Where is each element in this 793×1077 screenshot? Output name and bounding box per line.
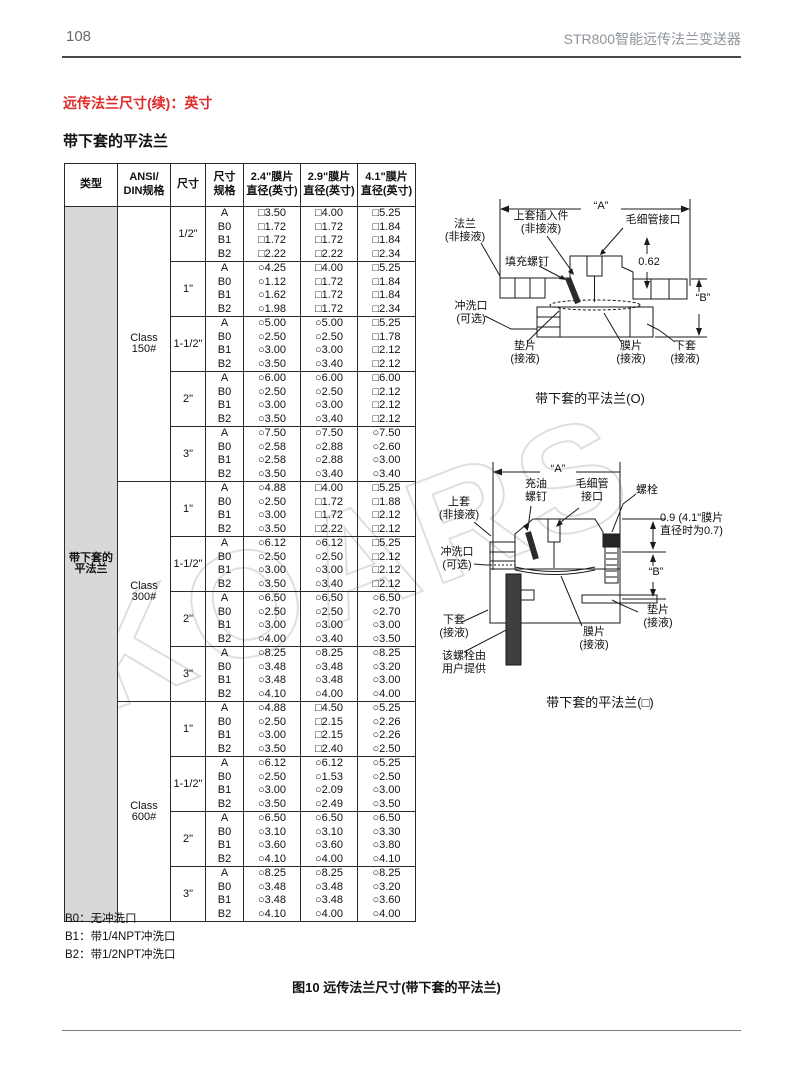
value-cell: □2.15 — [301, 716, 358, 730]
value-cell: ○3.80 — [358, 839, 416, 853]
value-cell: ○2.88 — [301, 454, 358, 468]
dim-b-label: “B” — [636, 566, 676, 579]
spec-cell: B0 — [206, 716, 244, 730]
diaphragm-label: 膜片 (接液) — [605, 340, 657, 366]
dim-062-label: 0.62 — [631, 256, 667, 269]
value-cell: □2.12 — [358, 413, 416, 427]
value-cell: ○4.00 — [301, 853, 358, 867]
value-cell: ○4.00 — [244, 633, 301, 647]
spec-cell: B2 — [206, 468, 244, 482]
value-cell: ○3.48 — [244, 674, 301, 688]
value-cell: ○4.00 — [301, 908, 358, 922]
spec-cell: A — [206, 427, 244, 441]
value-cell: ○6.00 — [244, 372, 301, 386]
user-supplied-bolt-label: 该螺栓由 用户提供 — [432, 650, 496, 676]
value-cell: □2.12 — [358, 386, 416, 400]
spec-cell: A — [206, 592, 244, 606]
value-cell: □2.12 — [358, 578, 416, 592]
class-cell: Class 600# — [118, 702, 171, 922]
lower-sleeve-label: 下套 (接液) — [659, 340, 711, 366]
value-cell: ○3.00 — [244, 509, 301, 523]
value-cell: ○3.10 — [301, 826, 358, 840]
value-cell: □4.00 — [301, 482, 358, 496]
class-cell: Class 300# — [118, 482, 171, 702]
spec-cell: B2 — [206, 688, 244, 702]
value-cell: ○3.60 — [244, 839, 301, 853]
spec-cell: B2 — [206, 908, 244, 922]
manual-page: 108 STR800智能远传法兰变送器 远传法兰尺寸(续)：英寸 带下套的平法兰… — [0, 0, 793, 1077]
value-cell: ○3.00 — [358, 784, 416, 798]
value-cell: ○4.00 — [301, 688, 358, 702]
value-cell: ○6.50 — [244, 812, 301, 826]
spec-cell: B0 — [206, 826, 244, 840]
value-cell: ○3.50 — [244, 578, 301, 592]
value-cell: ○6.12 — [301, 757, 358, 771]
value-cell: ○3.00 — [244, 729, 301, 743]
value-cell: ○2.09 — [301, 784, 358, 798]
value-cell: □2.12 — [358, 399, 416, 413]
spec-cell: B2 — [206, 633, 244, 647]
value-cell: ○3.40 — [301, 578, 358, 592]
value-cell: □2.22 — [301, 248, 358, 262]
value-cell: ○4.10 — [244, 908, 301, 922]
note-line: B1：带1/4NPT冲洗口 — [65, 928, 176, 946]
value-cell: ○1.62 — [244, 289, 301, 303]
capillary-port-label: 毛细管接口 — [611, 214, 695, 227]
value-cell: ○8.25 — [244, 647, 301, 661]
figure-caption: 图10 远传法兰尺寸(带下套的平法兰) — [0, 977, 793, 996]
value-cell: □1.72 — [301, 303, 358, 317]
value-cell: □6.00 — [358, 372, 416, 386]
spec-cell: B0 — [206, 331, 244, 345]
value-cell: □4.50 — [301, 702, 358, 716]
gasket-label: 垫片 (接液) — [499, 340, 551, 366]
value-cell: ○3.00 — [301, 619, 358, 633]
value-cell: ○4.88 — [244, 702, 301, 716]
value-cell: □1.72 — [301, 234, 358, 248]
diagram-flat-flange-square: “A” 充油 螺钉 毛细管 接口 螺栓 上套 (非接液) 冲洗口 (可选) 0.… — [430, 452, 770, 714]
value-cell: □2.12 — [358, 358, 416, 372]
size-cell: 2" — [171, 372, 206, 427]
dim-a-label: “A” — [581, 200, 621, 213]
spec-cell: A — [206, 262, 244, 276]
size-cell: 1" — [171, 262, 206, 317]
value-cell: ○5.00 — [244, 317, 301, 331]
value-cell: ○3.50 — [244, 413, 301, 427]
dimensions-table: 类型ANSI/ DIN规格尺寸尺寸 规格2.4"膜片 直径(英寸)2.9"膜片 … — [64, 163, 416, 922]
value-cell: □2.40 — [301, 743, 358, 757]
dim-b-label: “B” — [685, 292, 721, 305]
fill-screw-label: 填充螺钉 — [497, 256, 557, 269]
type-cell: 带下套的 平法兰 — [65, 207, 118, 922]
value-cell: ○4.00 — [358, 908, 416, 922]
value-cell: ○2.50 — [244, 551, 301, 565]
value-cell: ○2.50 — [301, 331, 358, 345]
diagram-caption: 带下套的平法兰(□) — [430, 692, 770, 711]
value-cell: ○4.88 — [244, 482, 301, 496]
header-title: STR800智能远传法兰变送器 — [564, 29, 741, 49]
diaphragm-label: 膜片 (接液) — [568, 626, 620, 652]
value-cell: ○8.25 — [358, 867, 416, 881]
flange-label: 法兰 (非接液) — [437, 218, 493, 244]
footer-divider — [62, 1030, 741, 1031]
value-cell: ○3.00 — [244, 784, 301, 798]
value-cell: □1.72 — [301, 276, 358, 290]
value-cell: □2.34 — [358, 248, 416, 262]
value-cell: ○2.50 — [301, 386, 358, 400]
spec-cell: B2 — [206, 248, 244, 262]
flush-port-label: 冲洗口 (可选) — [445, 300, 497, 326]
spec-cell: A — [206, 647, 244, 661]
value-cell: □2.22 — [244, 248, 301, 262]
value-cell: ○3.00 — [244, 344, 301, 358]
value-cell: ○6.50 — [358, 812, 416, 826]
value-cell: ○3.00 — [301, 564, 358, 578]
table-row: 带下套的 平法兰Class 150#1/2"A□3.50□4.00□5.25 — [65, 207, 416, 221]
value-cell: ○6.50 — [301, 592, 358, 606]
value-cell: ○2.88 — [301, 441, 358, 455]
value-cell: ○3.00 — [244, 564, 301, 578]
value-cell: ○3.00 — [301, 344, 358, 358]
value-cell: ○3.50 — [244, 523, 301, 537]
spec-cell: B2 — [206, 523, 244, 537]
value-cell: ○2.58 — [244, 441, 301, 455]
spec-cell: B0 — [206, 441, 244, 455]
value-cell: ○2.50 — [244, 331, 301, 345]
value-cell: □5.25 — [358, 317, 416, 331]
value-cell: □1.72 — [244, 234, 301, 248]
upper-sleeve-insert-label: 上套插入件 (非接液) — [499, 210, 583, 236]
value-cell: ○7.50 — [301, 427, 358, 441]
value-cell: □1.72 — [301, 496, 358, 510]
size-cell: 1" — [171, 482, 206, 537]
value-cell: □4.00 — [301, 207, 358, 221]
value-cell: ○3.48 — [301, 881, 358, 895]
value-cell: ○3.20 — [358, 881, 416, 895]
dim-09-label: 0.9 (4.1"膜片 直径时为0.7) — [660, 512, 770, 538]
spec-cell: A — [206, 537, 244, 551]
value-cell: ○2.50 — [244, 606, 301, 620]
spec-cell: B1 — [206, 839, 244, 853]
value-cell: □1.72 — [301, 289, 358, 303]
table-row: Class 300#1"A○4.88□4.00□5.25 — [65, 482, 416, 496]
value-cell: □2.12 — [358, 344, 416, 358]
note-line: B0：无冲洗口 — [65, 910, 176, 928]
spec-cell: A — [206, 372, 244, 386]
value-cell: ○3.50 — [244, 358, 301, 372]
spec-cell: A — [206, 317, 244, 331]
value-cell: ○3.00 — [358, 674, 416, 688]
value-cell: ○1.98 — [244, 303, 301, 317]
spec-cell: B1 — [206, 454, 244, 468]
value-cell: ○3.40 — [301, 633, 358, 647]
value-cell: ○4.10 — [244, 853, 301, 867]
spec-cell: B2 — [206, 798, 244, 812]
value-cell: ○3.48 — [301, 894, 358, 908]
value-cell: □3.50 — [244, 207, 301, 221]
value-cell: ○3.48 — [301, 661, 358, 675]
value-cell: □1.72 — [244, 221, 301, 235]
column-header: 尺寸 规格 — [206, 164, 244, 207]
value-cell: ○3.48 — [244, 881, 301, 895]
value-cell: □2.12 — [358, 551, 416, 565]
column-header: 4.1"膜片 直径(英寸) — [358, 164, 416, 207]
column-header: 2.9"膜片 直径(英寸) — [301, 164, 358, 207]
diagram-flat-flange-round: “A” 法兰 (非接液) 上套插入件 (非接液) 毛细管接口 填充螺钉 0.62… — [435, 186, 745, 408]
spec-cell: B2 — [206, 853, 244, 867]
value-cell: ○7.50 — [244, 427, 301, 441]
capillary-port-label: 毛细管 接口 — [566, 478, 618, 504]
spec-cell: B1 — [206, 234, 244, 248]
value-cell: ○3.40 — [301, 468, 358, 482]
value-cell: ○8.25 — [244, 867, 301, 881]
value-cell: ○3.60 — [301, 839, 358, 853]
value-cell: ○3.50 — [244, 798, 301, 812]
spec-cell: B1 — [206, 289, 244, 303]
spec-cell: B1 — [206, 729, 244, 743]
column-header: 类型 — [65, 164, 118, 207]
spec-cell: B0 — [206, 276, 244, 290]
value-cell: □1.72 — [301, 221, 358, 235]
value-cell: ○3.00 — [358, 619, 416, 633]
value-cell: □5.25 — [358, 537, 416, 551]
value-cell: ○4.00 — [358, 688, 416, 702]
spec-cell: B1 — [206, 619, 244, 633]
value-cell: ○2.58 — [244, 454, 301, 468]
value-cell: □1.78 — [358, 331, 416, 345]
value-cell: ○6.12 — [301, 537, 358, 551]
value-cell: □1.84 — [358, 289, 416, 303]
value-cell: ○2.50 — [244, 386, 301, 400]
spec-cell: B1 — [206, 564, 244, 578]
value-cell: □5.25 — [358, 482, 416, 496]
dim-a-label: “A” — [540, 463, 576, 476]
class-cell: Class 150# — [118, 207, 171, 482]
value-cell: ○3.40 — [301, 413, 358, 427]
value-cell: □5.25 — [358, 262, 416, 276]
spec-cell: B0 — [206, 496, 244, 510]
value-cell: □2.34 — [358, 303, 416, 317]
value-cell: □1.84 — [358, 234, 416, 248]
value-cell: ○4.10 — [244, 688, 301, 702]
value-cell: ○6.12 — [244, 757, 301, 771]
value-cell: ○2.50 — [244, 771, 301, 785]
value-cell: ○2.50 — [301, 551, 358, 565]
value-cell: ○6.00 — [301, 372, 358, 386]
value-cell: ○3.48 — [301, 674, 358, 688]
value-cell: ○3.50 — [244, 468, 301, 482]
value-cell: ○2.60 — [358, 441, 416, 455]
value-cell: □1.88 — [358, 496, 416, 510]
value-cell: ○6.50 — [358, 592, 416, 606]
value-cell: ○2.50 — [301, 606, 358, 620]
value-cell: ○2.26 — [358, 729, 416, 743]
spec-cell: B1 — [206, 509, 244, 523]
spec-cell: B1 — [206, 894, 244, 908]
value-cell: □1.84 — [358, 276, 416, 290]
value-cell: ○6.50 — [244, 592, 301, 606]
value-cell: ○2.50 — [358, 743, 416, 757]
size-cell: 1/2" — [171, 207, 206, 262]
column-header: 尺寸 — [171, 164, 206, 207]
value-cell: ○2.50 — [244, 716, 301, 730]
value-cell: ○2.70 — [358, 606, 416, 620]
oil-fill-screw-label: 充油 螺钉 — [514, 478, 558, 504]
value-cell: □1.72 — [301, 509, 358, 523]
value-cell: ○8.25 — [358, 647, 416, 661]
spec-cell: B0 — [206, 606, 244, 620]
lower-sleeve-label: 下套 (接液) — [432, 614, 476, 640]
page-number: 108 — [66, 28, 91, 45]
size-cell: 2" — [171, 592, 206, 647]
value-cell: ○3.50 — [358, 633, 416, 647]
size-cell: 3" — [171, 427, 206, 482]
spec-cell: A — [206, 757, 244, 771]
value-cell: □1.84 — [358, 221, 416, 235]
value-cell: ○2.49 — [301, 798, 358, 812]
spec-cell: B0 — [206, 551, 244, 565]
spec-cell: B1 — [206, 674, 244, 688]
spec-cell: B0 — [206, 221, 244, 235]
value-cell: ○5.00 — [301, 317, 358, 331]
spec-cell: B2 — [206, 358, 244, 372]
value-cell: □2.12 — [358, 523, 416, 537]
section-title: 远传法兰尺寸(续)：英寸 — [63, 93, 212, 113]
spec-cell: A — [206, 812, 244, 826]
value-cell: □2.15 — [301, 729, 358, 743]
size-cell: 1-1/2" — [171, 317, 206, 372]
value-cell: ○7.50 — [358, 427, 416, 441]
value-cell: ○1.53 — [301, 771, 358, 785]
value-cell: ○3.48 — [244, 661, 301, 675]
size-cell: 3" — [171, 867, 206, 922]
subsection-title: 带下套的平法兰 — [63, 130, 168, 151]
value-cell: ○8.25 — [301, 867, 358, 881]
spec-cell: B1 — [206, 399, 244, 413]
value-cell: ○2.50 — [358, 771, 416, 785]
value-cell: ○2.26 — [358, 716, 416, 730]
table-row: Class 600#1"A○4.88□4.50○5.25 — [65, 702, 416, 716]
value-cell: ○3.00 — [244, 399, 301, 413]
value-cell: □2.22 — [301, 523, 358, 537]
bolt-label: 螺栓 — [636, 484, 676, 497]
value-cell: ○5.25 — [358, 702, 416, 716]
gasket-label: 垫片 (接液) — [632, 604, 684, 630]
value-cell: ○3.10 — [244, 826, 301, 840]
value-cell: □4.00 — [301, 262, 358, 276]
value-cell: ○3.40 — [358, 468, 416, 482]
value-cell: ○3.30 — [358, 826, 416, 840]
size-cell: 3" — [171, 647, 206, 702]
spec-cell: B0 — [206, 661, 244, 675]
spec-cell: A — [206, 867, 244, 881]
value-cell: □2.12 — [358, 564, 416, 578]
table-notes: B0：无冲洗口B1：带1/4NPT冲洗口B2：带1/2NPT冲洗口 — [65, 910, 176, 964]
spec-cell: B1 — [206, 784, 244, 798]
value-cell: ○3.50 — [358, 798, 416, 812]
size-cell: 1" — [171, 702, 206, 757]
spec-cell: A — [206, 482, 244, 496]
spec-cell: B0 — [206, 771, 244, 785]
value-cell: ○3.20 — [358, 661, 416, 675]
size-cell: 1-1/2" — [171, 757, 206, 812]
spec-cell: B2 — [206, 578, 244, 592]
value-cell: ○3.40 — [301, 358, 358, 372]
value-cell: ○3.00 — [301, 399, 358, 413]
value-cell: ○4.25 — [244, 262, 301, 276]
value-cell: ○6.50 — [301, 812, 358, 826]
spec-cell: B0 — [206, 386, 244, 400]
flush-port-label: 冲洗口 (可选) — [432, 546, 482, 572]
size-cell: 2" — [171, 812, 206, 867]
value-cell: ○6.12 — [244, 537, 301, 551]
value-cell: ○3.50 — [244, 743, 301, 757]
value-cell: ○2.50 — [244, 496, 301, 510]
upper-sleeve-label: 上套 (非接液) — [430, 496, 488, 522]
column-header: ANSI/ DIN规格 — [118, 164, 171, 207]
value-cell: ○3.00 — [358, 454, 416, 468]
value-cell: □5.25 — [358, 207, 416, 221]
spec-cell: B2 — [206, 303, 244, 317]
spec-cell: A — [206, 207, 244, 221]
value-cell: ○3.60 — [358, 894, 416, 908]
value-cell: ○3.00 — [244, 619, 301, 633]
value-cell: ○3.48 — [244, 894, 301, 908]
value-cell: □2.12 — [358, 509, 416, 523]
value-cell: ○5.25 — [358, 757, 416, 771]
value-cell: ○1.12 — [244, 276, 301, 290]
diagram-caption: 带下套的平法兰(O) — [435, 388, 745, 407]
spec-cell: B0 — [206, 881, 244, 895]
spec-cell: A — [206, 702, 244, 716]
spec-cell: B1 — [206, 344, 244, 358]
note-line: B2：带1/2NPT冲洗口 — [65, 946, 176, 964]
header-divider — [62, 56, 741, 58]
table-header-row: 类型ANSI/ DIN规格尺寸尺寸 规格2.4"膜片 直径(英寸)2.9"膜片 … — [65, 164, 416, 207]
value-cell: ○4.10 — [358, 853, 416, 867]
value-cell: ○8.25 — [301, 647, 358, 661]
size-cell: 1-1/2" — [171, 537, 206, 592]
column-header: 2.4"膜片 直径(英寸) — [244, 164, 301, 207]
spec-cell: B2 — [206, 413, 244, 427]
spec-cell: B2 — [206, 743, 244, 757]
